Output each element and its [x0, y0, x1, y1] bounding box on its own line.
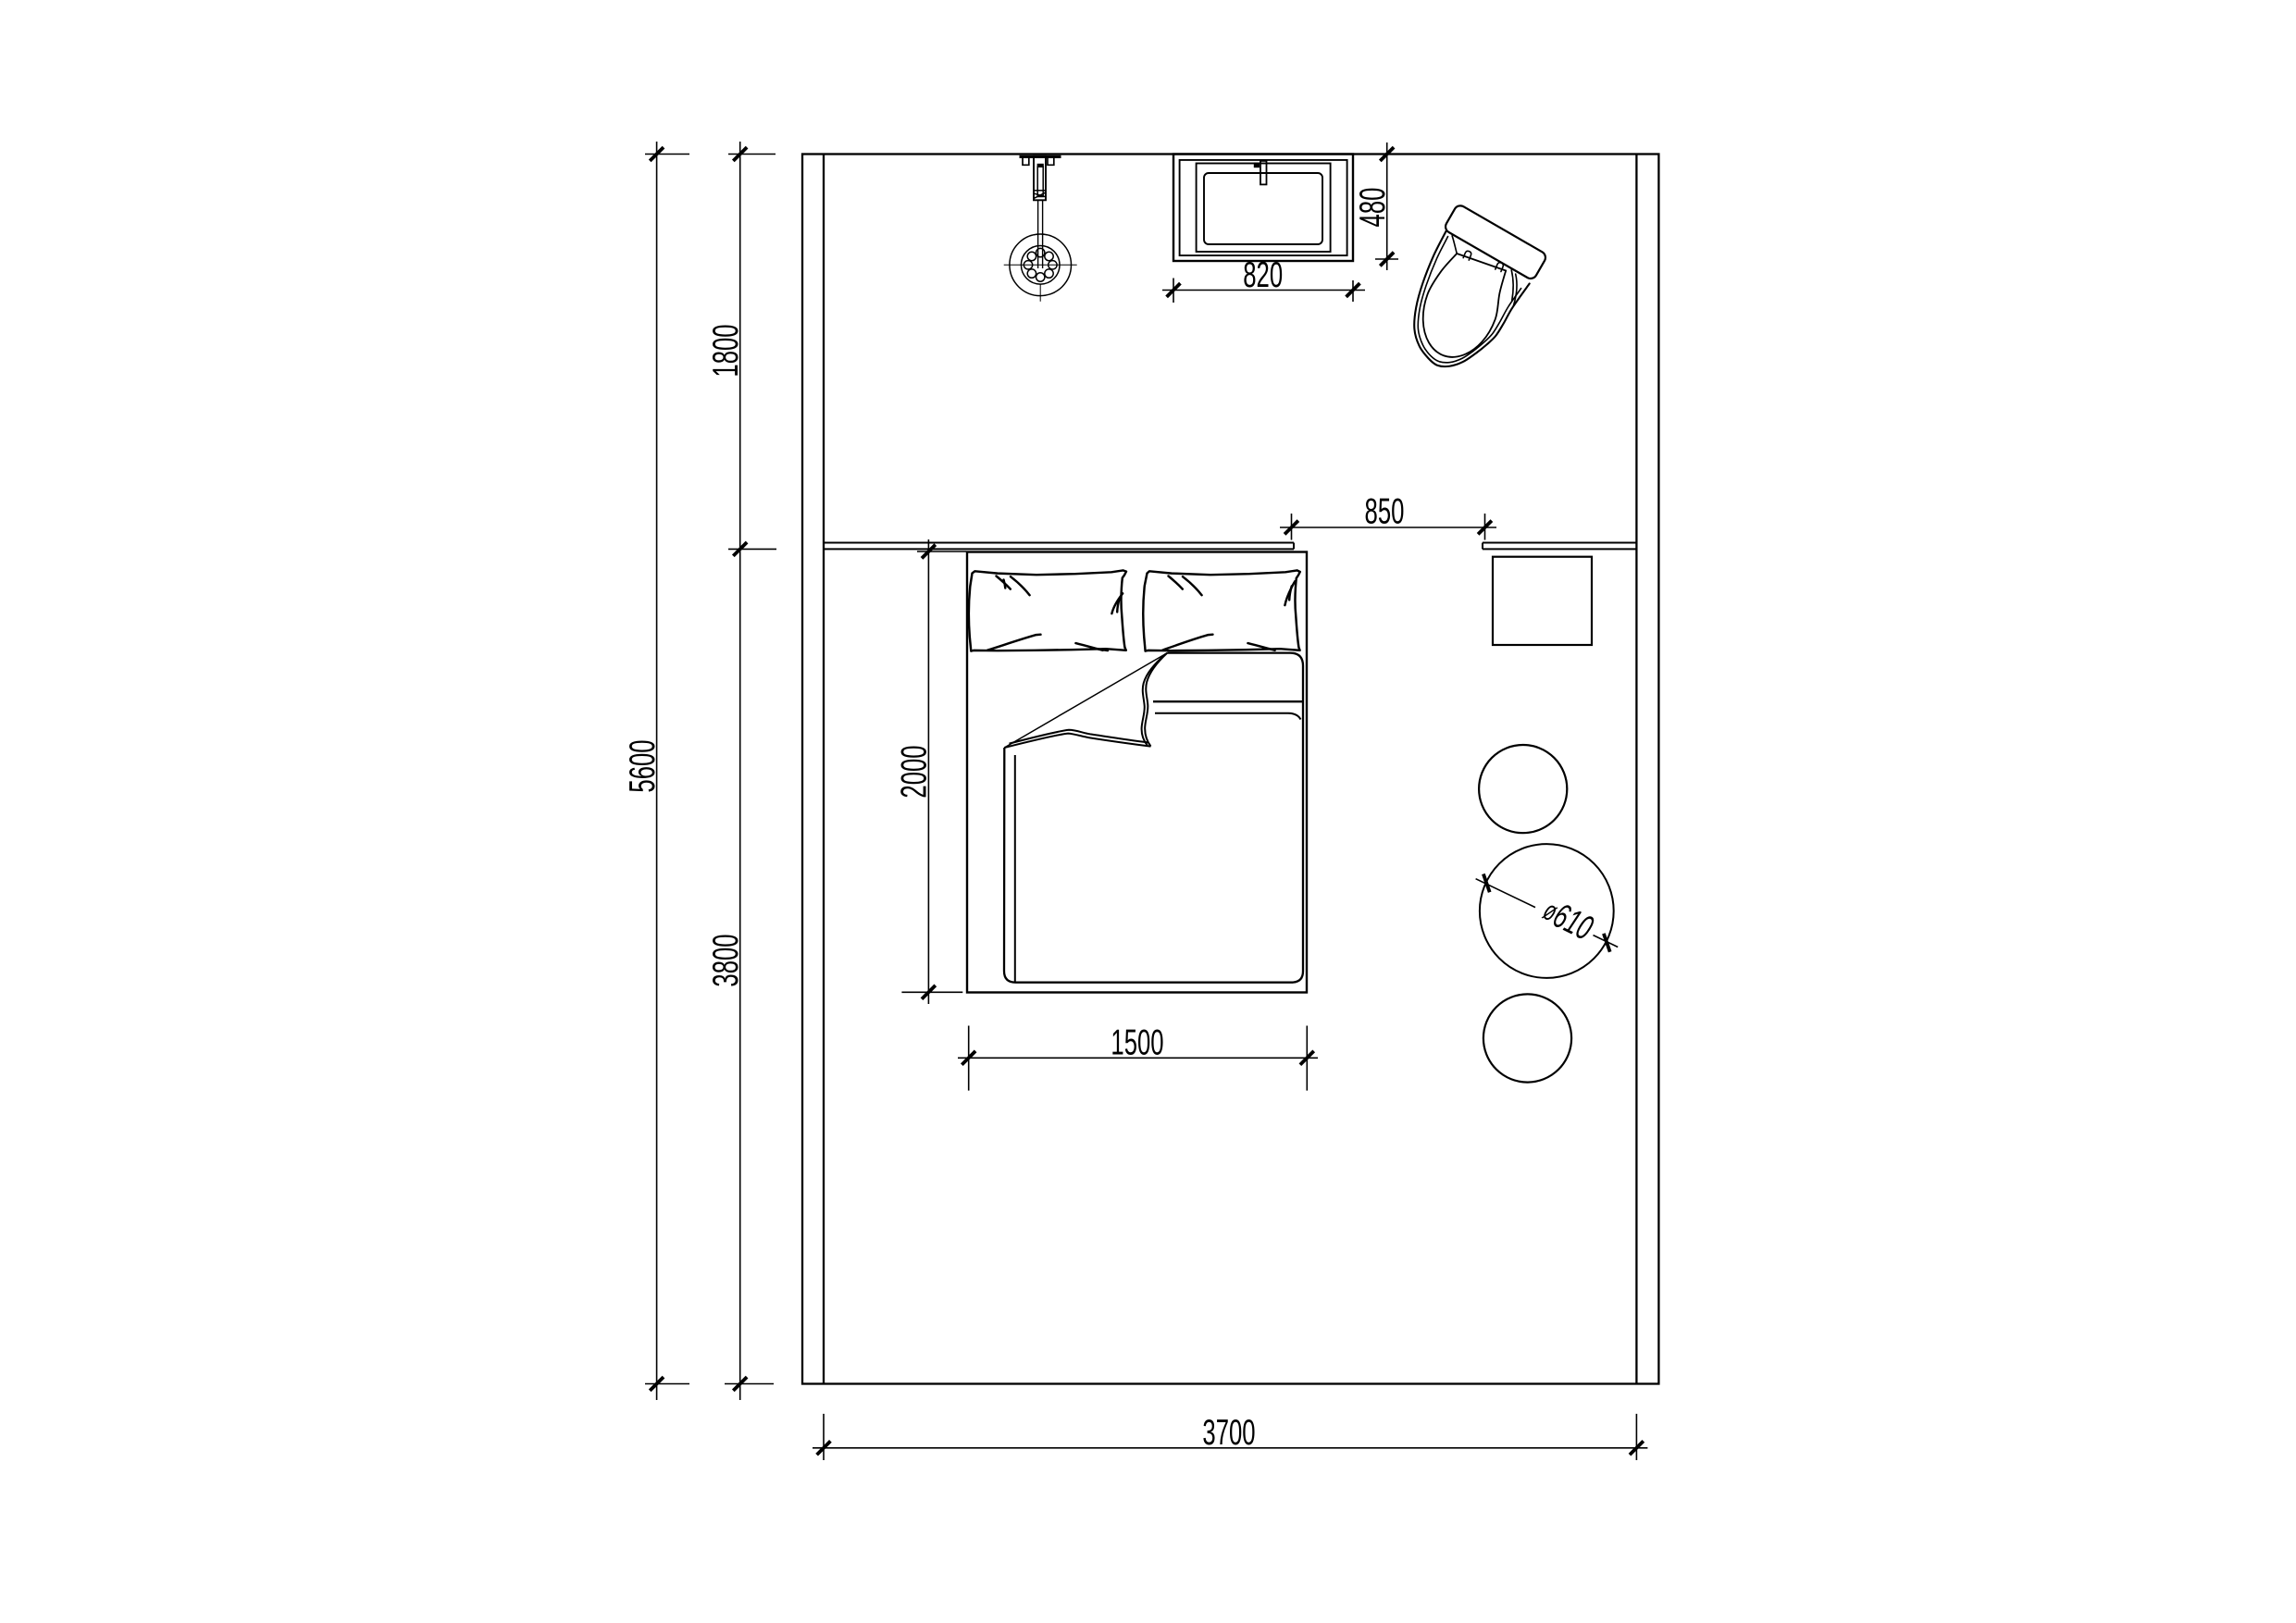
svg-text:3700: 3700 — [1202, 1412, 1255, 1453]
svg-text:820: 820 — [1243, 254, 1283, 295]
svg-text:1800: 1800 — [705, 324, 746, 377]
svg-text:2000: 2000 — [893, 745, 934, 798]
svg-text:3800: 3800 — [705, 934, 746, 986]
svg-text:480: 480 — [1352, 188, 1393, 228]
svg-text:5600: 5600 — [622, 739, 663, 792]
svg-text:850: 850 — [1365, 490, 1405, 531]
svg-text:1500: 1500 — [1111, 1022, 1163, 1062]
